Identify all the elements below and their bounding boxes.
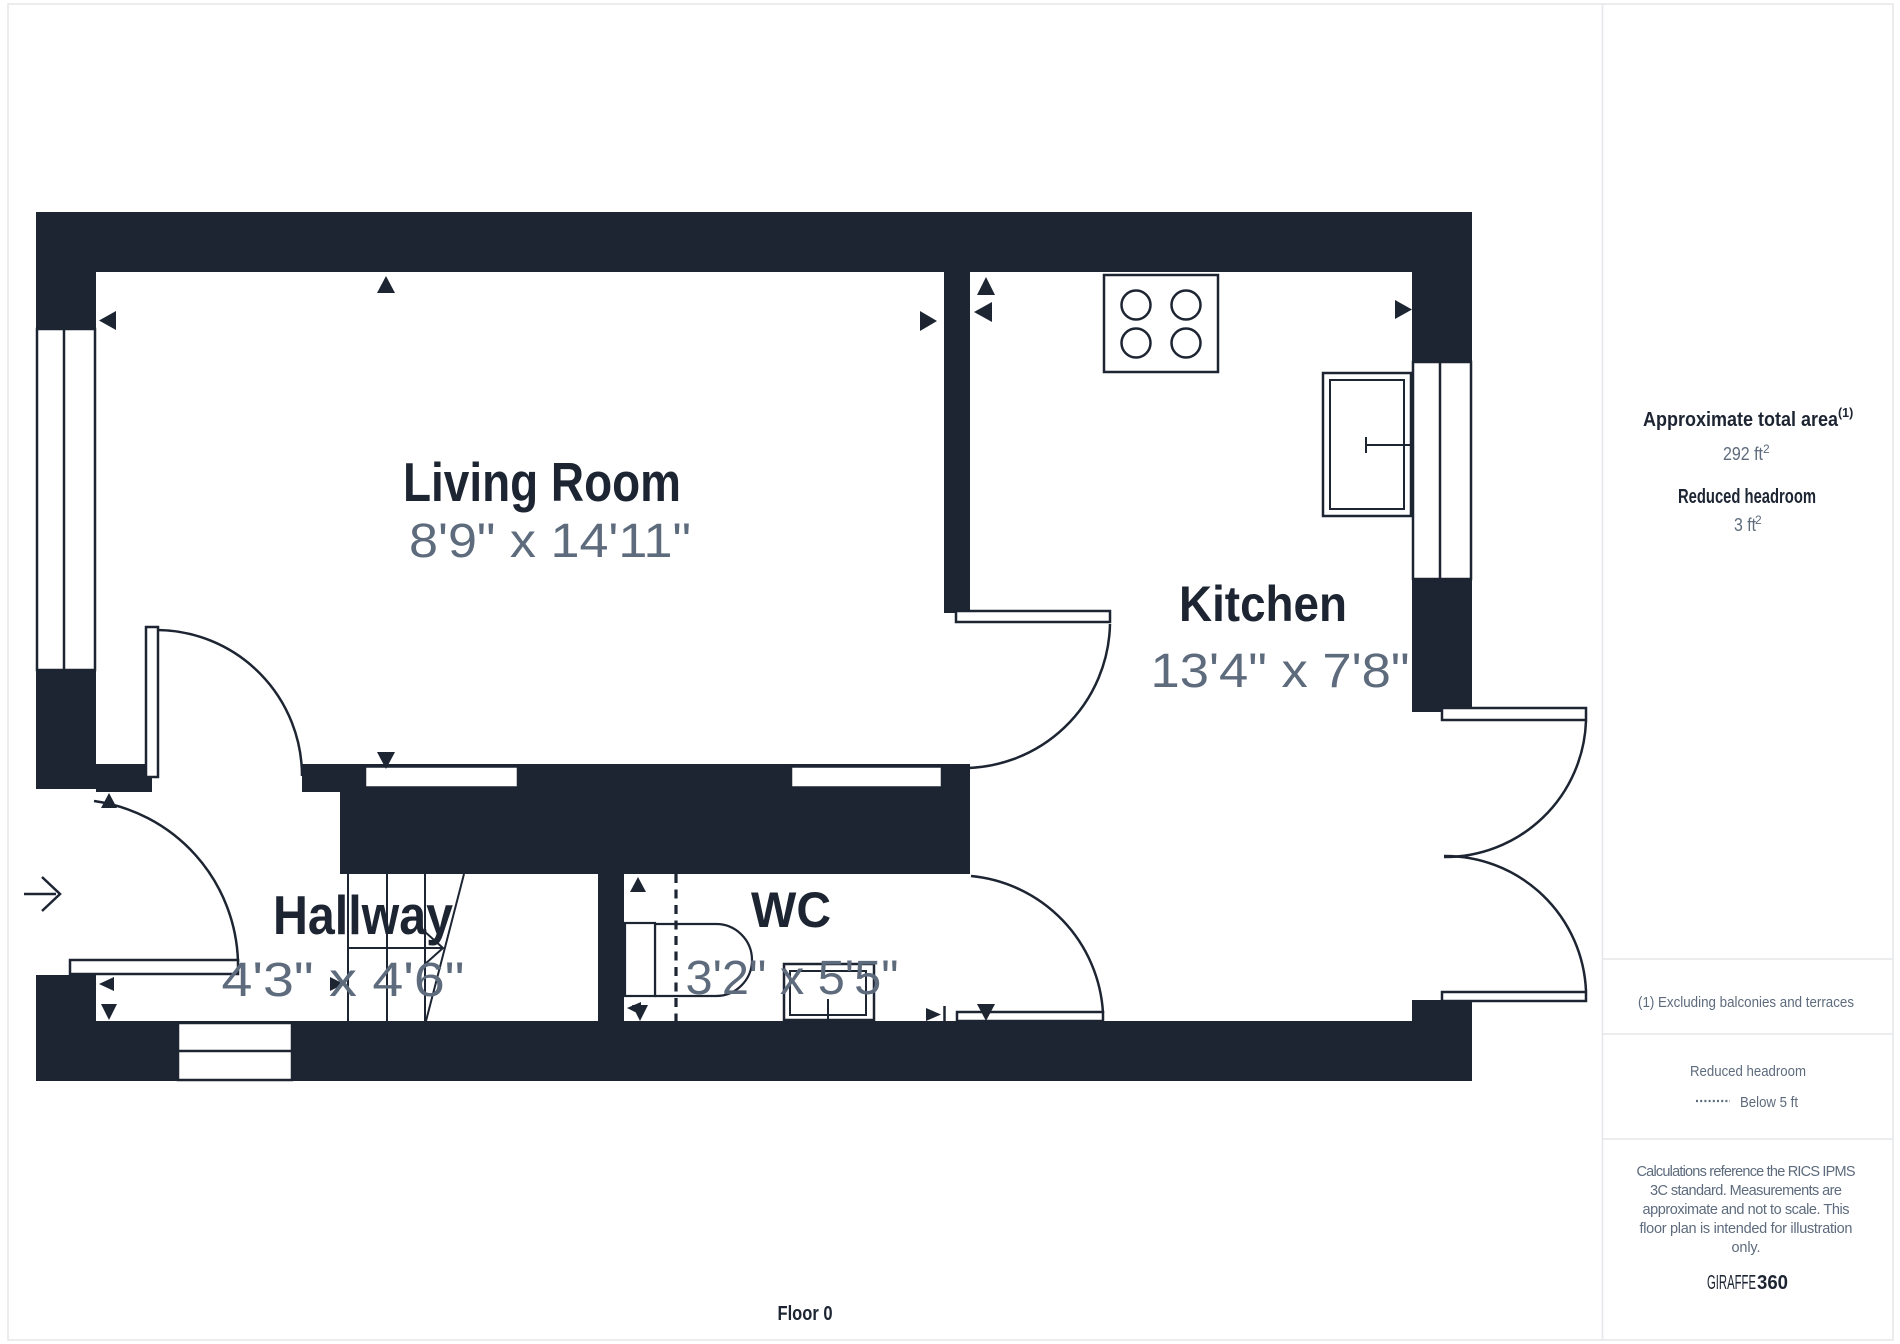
svg-text:292 ft: 292 ft (1723, 443, 1763, 464)
svg-text:Below 5 ft: Below 5 ft (1740, 1094, 1799, 1111)
svg-text:only.: only. (1732, 1240, 1761, 1256)
svg-text:Calculations reference the RIC: Calculations reference the RICS IPMS (1637, 1164, 1856, 1180)
svg-text:WC: WC (751, 882, 831, 938)
svg-text:approximate and not to scale.: approximate and not to scale. This (1643, 1202, 1850, 1218)
svg-text:360: 360 (1757, 1272, 1788, 1294)
svg-text:(1) Excluding balconies and te: (1) Excluding balconies and terraces (1638, 995, 1854, 1011)
svg-text:8'9" x 14'11": 8'9" x 14'11" (409, 515, 691, 568)
svg-text:4'3" x 4'6": 4'3" x 4'6" (222, 954, 465, 1007)
svg-text:3 ft: 3 ft (1734, 514, 1756, 535)
svg-text:Hallway: Hallway (273, 884, 453, 946)
svg-text:Reduced headroom: Reduced headroom (1678, 486, 1816, 508)
svg-text:Kitchen: Kitchen (1179, 576, 1347, 632)
svg-text:floor plan is intended for ill: floor plan is intended for illustration (1640, 1221, 1853, 1237)
svg-text:Living Room: Living Room (403, 451, 681, 513)
svg-text:GIRAFFE: GIRAFFE (1707, 1272, 1756, 1294)
svg-text:Reduced headroom: Reduced headroom (1690, 1063, 1806, 1080)
svg-text:Approximate total area: Approximate total area (1643, 409, 1839, 431)
svg-text:2: 2 (1755, 513, 1762, 527)
svg-text:13'4" x 7'8": 13'4" x 7'8" (1151, 645, 1410, 698)
svg-text:Floor 0: Floor 0 (778, 1303, 833, 1325)
svg-text:(1): (1) (1838, 406, 1853, 420)
svg-text:2: 2 (1763, 442, 1770, 456)
svg-text:3'2" x 5'5": 3'2" x 5'5" (686, 952, 899, 1005)
svg-text:3C standard. Measurements are: 3C standard. Measurements are (1650, 1183, 1842, 1199)
